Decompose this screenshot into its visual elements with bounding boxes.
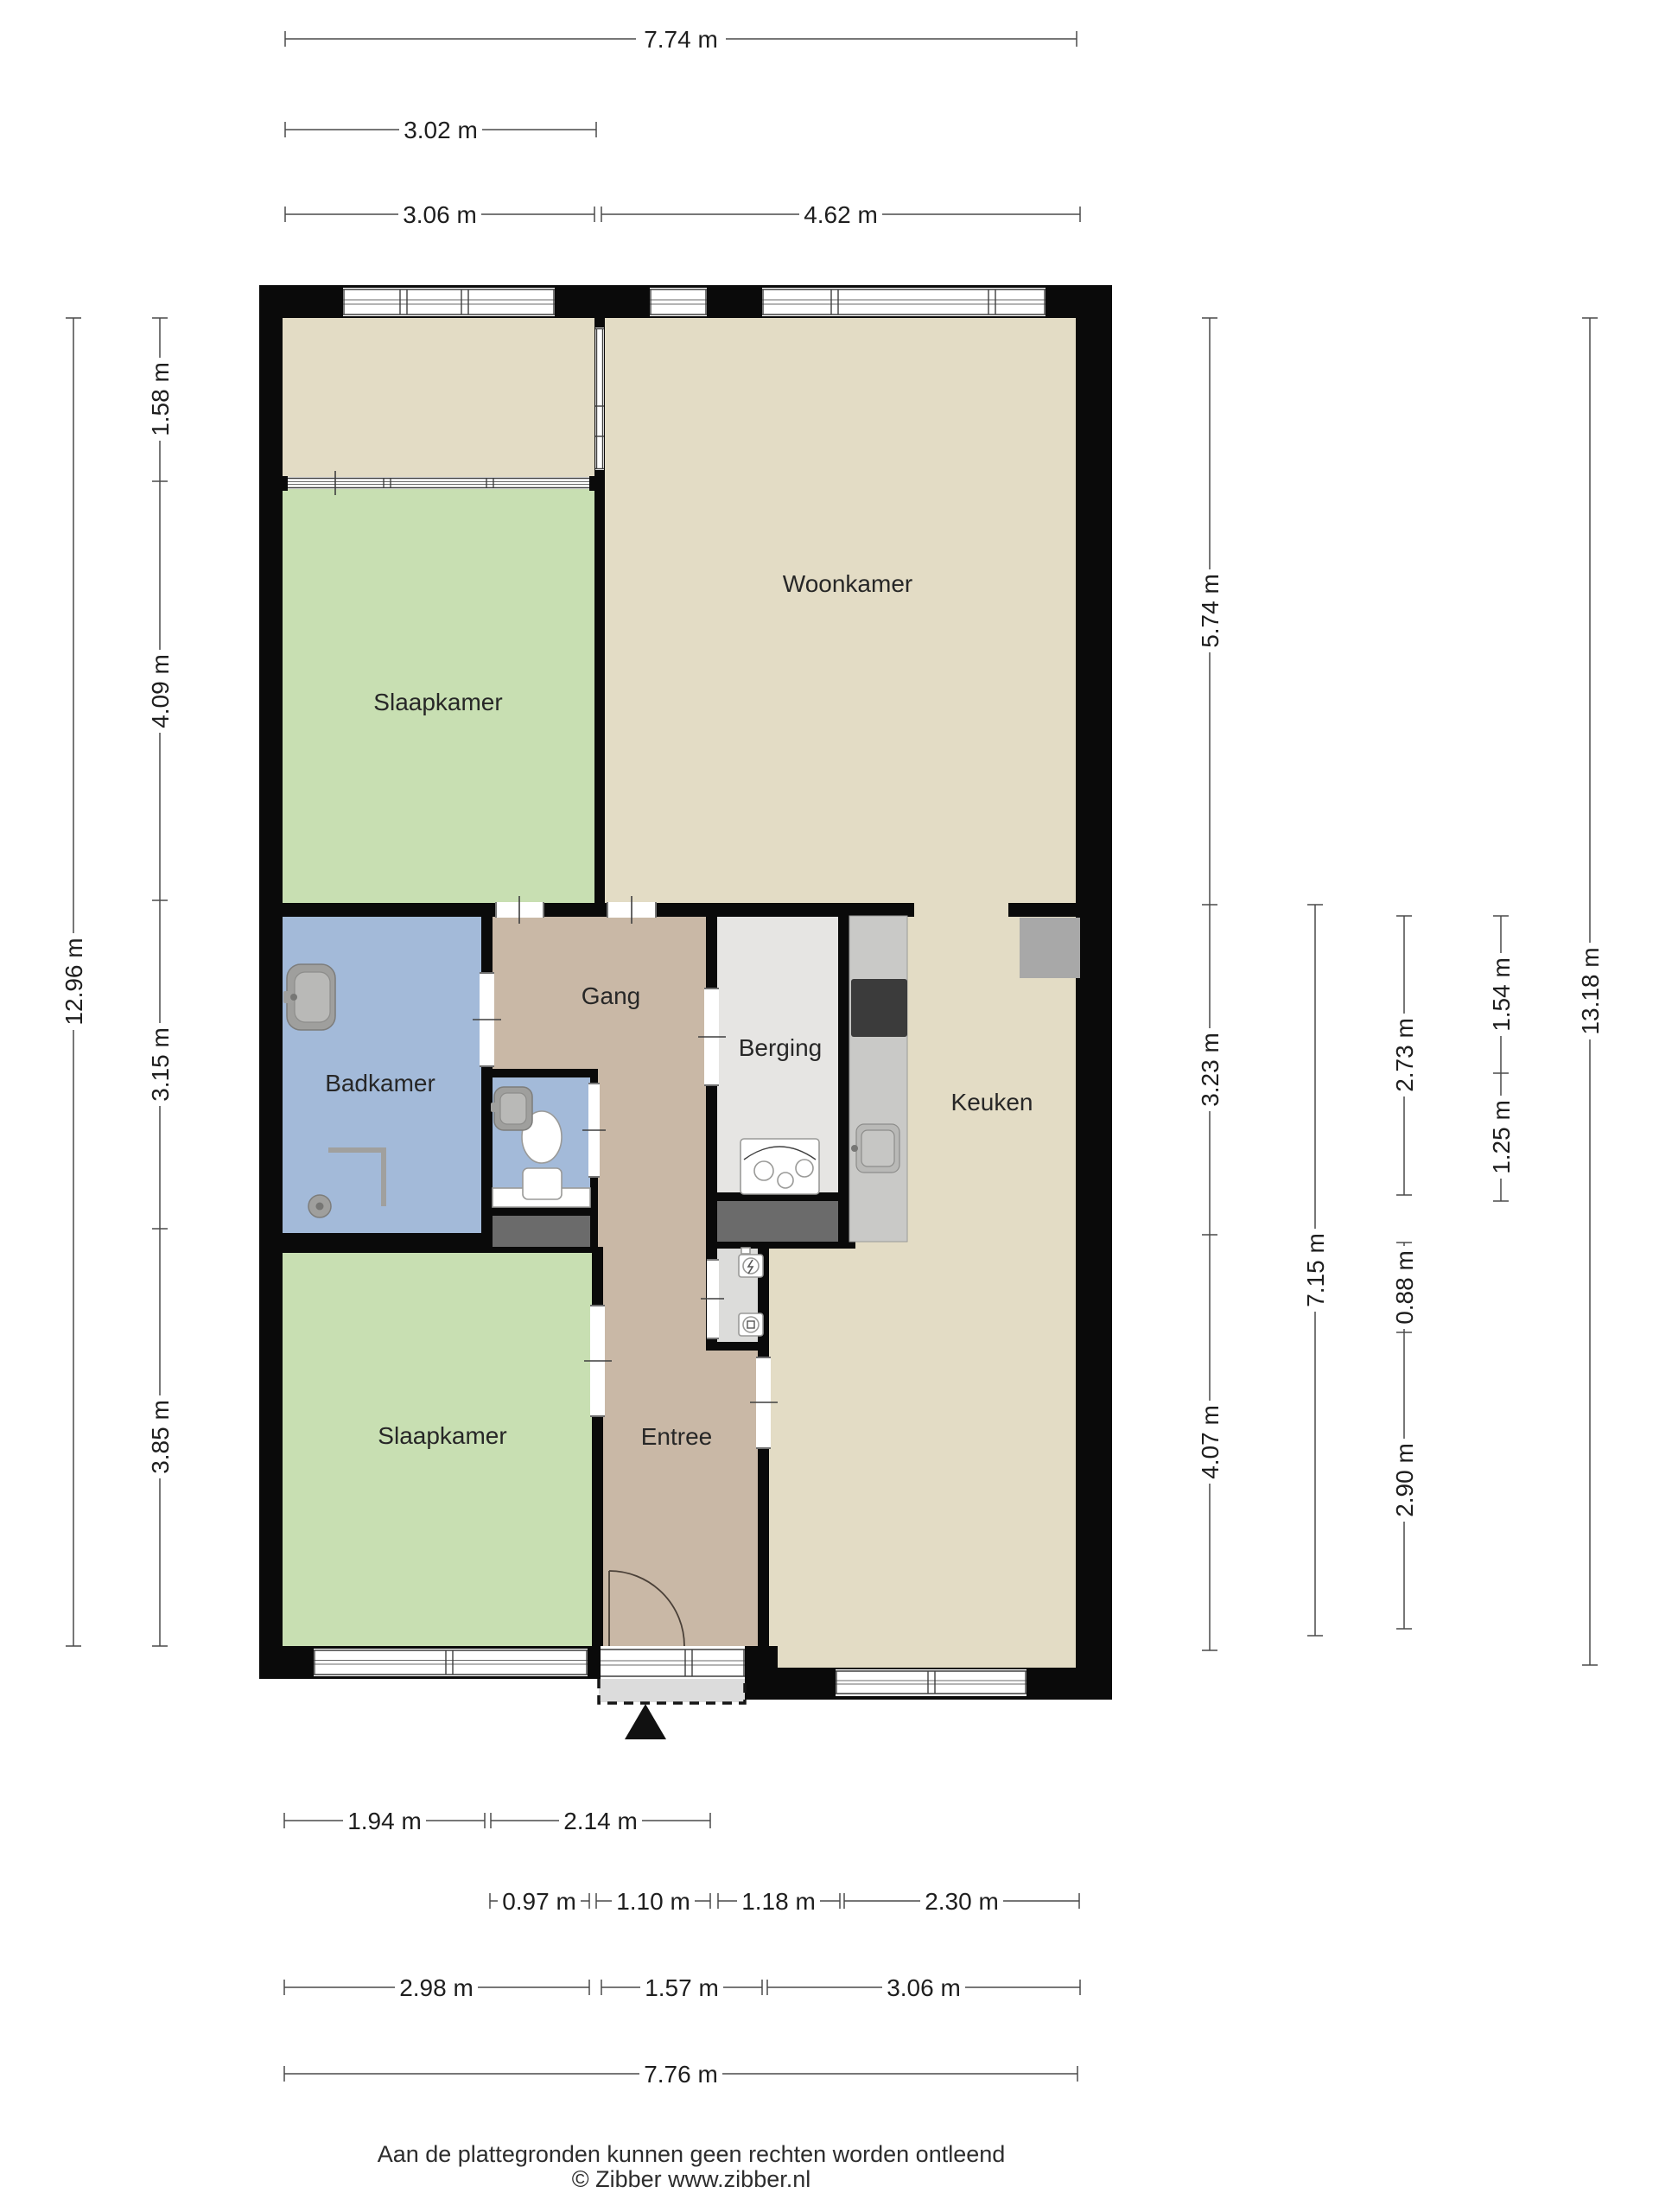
- window-top-middle-icon: [650, 288, 707, 316]
- shaft-below-berging: [717, 1201, 838, 1242]
- svg-text:0.97 m: 0.97 m: [502, 1888, 576, 1915]
- dim-top-462: 4.62 m: [601, 201, 1080, 228]
- washing-machine-icon: [741, 1139, 819, 1194]
- washbasin-icon: [283, 964, 335, 1030]
- svg-text:13.18 m: 13.18 m: [1577, 947, 1604, 1034]
- svg-text:1.57 m: 1.57 m: [645, 1974, 719, 2001]
- footer: Aan de plattegronden kunnen geen rechten…: [378, 2141, 1006, 2192]
- room-label-entree: Entree: [641, 1423, 713, 1450]
- room-label-berging: Berging: [739, 1034, 823, 1061]
- svg-text:2.90 m: 2.90 m: [1391, 1443, 1418, 1517]
- shaft-below-toilet: [493, 1216, 590, 1247]
- entrance-arrow-icon: [625, 1704, 666, 1739]
- svg-text:7.15 m: 7.15 m: [1302, 1233, 1329, 1307]
- svg-text:2.14 m: 2.14 m: [563, 1808, 638, 1834]
- room-keuken-floor-lower: [769, 1249, 1076, 1668]
- window-partition-icon: [595, 327, 604, 470]
- footer-copyright: © Zibber www.zibber.nl: [572, 2166, 811, 2192]
- floors: [283, 318, 1076, 1668]
- svg-text:1.54 m: 1.54 m: [1488, 957, 1515, 1032]
- fridge-icon: [1020, 918, 1080, 978]
- kitchen-counter-icon: [849, 916, 907, 1242]
- dim-right-1318: 13.18 m: [1577, 318, 1604, 1665]
- svg-text:7.74 m: 7.74 m: [644, 26, 718, 53]
- room-entree-floor-strip: [603, 1253, 709, 1351]
- svg-text:3.02 m: 3.02 m: [404, 117, 478, 143]
- dim-left-1296: 12.96 m: [60, 318, 87, 1646]
- svg-text:1.58 m: 1.58 m: [147, 362, 174, 436]
- dim-bottom-row1: 1.94 m 2.14 m: [284, 1808, 710, 1834]
- passage-woonkamer-keuken-floor: [914, 903, 1008, 917]
- room-label-gang: Gang: [582, 982, 641, 1009]
- svg-text:2.73 m: 2.73 m: [1391, 1018, 1418, 1092]
- room-label-badkamer: Badkamer: [325, 1070, 435, 1096]
- dim-bottom-row3: 2.98 m 1.57 m 3.06 m: [284, 1974, 1080, 2001]
- room-balcony-area-floor: [283, 318, 594, 478]
- dim-left-chain: 1.58 m 4.09 m 3.15 m 3.85 m: [147, 318, 174, 1646]
- window-top-left-icon: [343, 288, 555, 316]
- window-bottom-left-icon: [314, 1649, 588, 1676]
- svg-text:5.74 m: 5.74 m: [1197, 574, 1224, 648]
- dim-right-chain-4: 1.54 m 1.25 m: [1488, 916, 1515, 1201]
- dim-right-chain-3: 2.73 m 0.88 m 2.90 m: [1391, 916, 1418, 1629]
- window-entree-band-icon: [601, 1648, 745, 1679]
- room-gang-floor-south: [598, 1069, 706, 1253]
- svg-text:3.23 m: 3.23 m: [1197, 1033, 1224, 1107]
- footer-disclaimer: Aan de plattegronden kunnen geen rechten…: [378, 2141, 1006, 2167]
- svg-text:1.25 m: 1.25 m: [1488, 1100, 1515, 1174]
- dim-bottom-row4: 7.76 m: [284, 2061, 1077, 2088]
- room-label-slaapkamer-bottom: Slaapkamer: [378, 1422, 506, 1449]
- room-label-keuken: Keuken: [951, 1089, 1033, 1116]
- room-label-slaapkamer-top: Slaapkamer: [373, 689, 502, 715]
- svg-text:7.76 m: 7.76 m: [644, 2061, 718, 2088]
- svg-text:3.06 m: 3.06 m: [887, 1974, 961, 2001]
- dim-right-chain-1: 5.74 m 3.23 m 4.07 m: [1197, 318, 1224, 1650]
- floorplan-page: Woonkamer Slaapkamer Badkamer Gang Bergi…: [0, 0, 1659, 2212]
- cooktop-icon: [851, 979, 907, 1037]
- entrance-porch: [599, 1679, 745, 1739]
- svg-text:1.18 m: 1.18 m: [741, 1888, 816, 1915]
- dim-top-774: 7.74 m: [285, 26, 1077, 53]
- svg-text:12.96 m: 12.96 m: [60, 938, 87, 1025]
- room-slaapkamer-bottom-floor: [283, 1253, 592, 1646]
- svg-text:1.94 m: 1.94 m: [347, 1808, 422, 1834]
- svg-text:4.62 m: 4.62 m: [804, 201, 878, 228]
- svg-text:0.88 m: 0.88 m: [1391, 1250, 1418, 1325]
- room-label-woonkamer: Woonkamer: [783, 570, 912, 597]
- window-top-right-icon: [762, 288, 1046, 316]
- toilet-basin-icon: [491, 1087, 532, 1130]
- svg-text:3.15 m: 3.15 m: [147, 1027, 174, 1102]
- svg-text:3.06 m: 3.06 m: [403, 201, 477, 228]
- dim-top-306: 3.06 m: [285, 201, 594, 228]
- room-woonkamer-floor: [605, 318, 1076, 905]
- dim-bottom-row2: 0.97 m 1.10 m 1.18 m 2.30 m: [490, 1888, 1079, 1915]
- svg-text:3.85 m: 3.85 m: [147, 1400, 174, 1474]
- window-keuken-icon: [836, 1669, 1027, 1696]
- dim-top-302: 3.02 m: [285, 117, 596, 143]
- dim-right-715: 7.15 m: [1302, 905, 1329, 1636]
- svg-text:4.07 m: 4.07 m: [1197, 1405, 1224, 1479]
- svg-text:4.09 m: 4.09 m: [147, 654, 174, 728]
- svg-text:1.10 m: 1.10 m: [616, 1888, 690, 1915]
- room-entree-floor: [603, 1351, 758, 1646]
- svg-text:2.98 m: 2.98 m: [399, 1974, 474, 2001]
- svg-text:2.30 m: 2.30 m: [925, 1888, 999, 1915]
